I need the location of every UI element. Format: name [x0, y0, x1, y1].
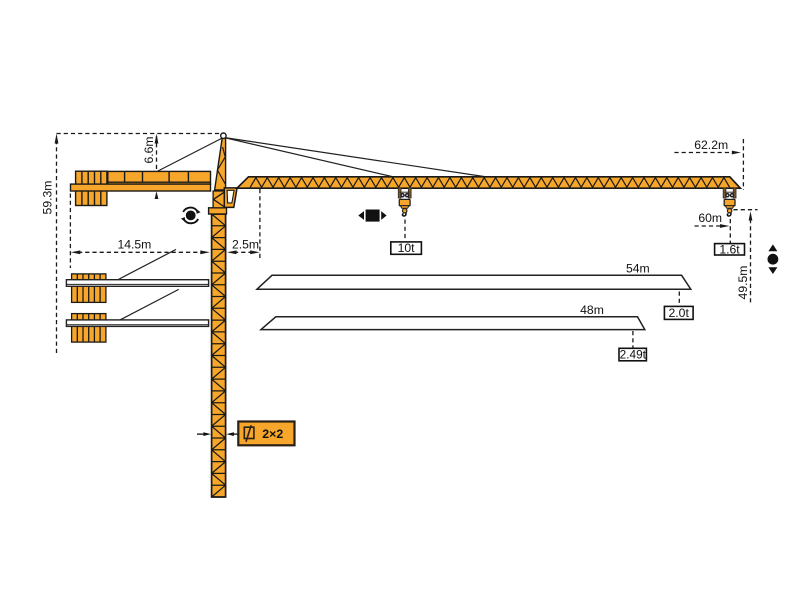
svg-text:2.0t: 2.0t — [669, 306, 690, 320]
svg-text:2.49t: 2.49t — [620, 347, 647, 361]
svg-text:1.6t: 1.6t — [719, 242, 740, 256]
svg-text:49.5m: 49.5m — [736, 266, 750, 300]
svg-text:10t: 10t — [398, 241, 416, 255]
svg-text:2×2: 2×2 — [262, 427, 283, 441]
svg-text:2.5m: 2.5m — [232, 237, 259, 251]
svg-text:48m: 48m — [580, 303, 604, 317]
svg-text:62.2m: 62.2m — [694, 138, 728, 152]
svg-text:54m: 54m — [626, 261, 650, 275]
svg-text:6.6m: 6.6m — [142, 136, 156, 163]
svg-text:14.5m: 14.5m — [117, 237, 151, 251]
svg-text:59.3m: 59.3m — [41, 181, 55, 215]
svg-text:60m: 60m — [698, 211, 722, 225]
